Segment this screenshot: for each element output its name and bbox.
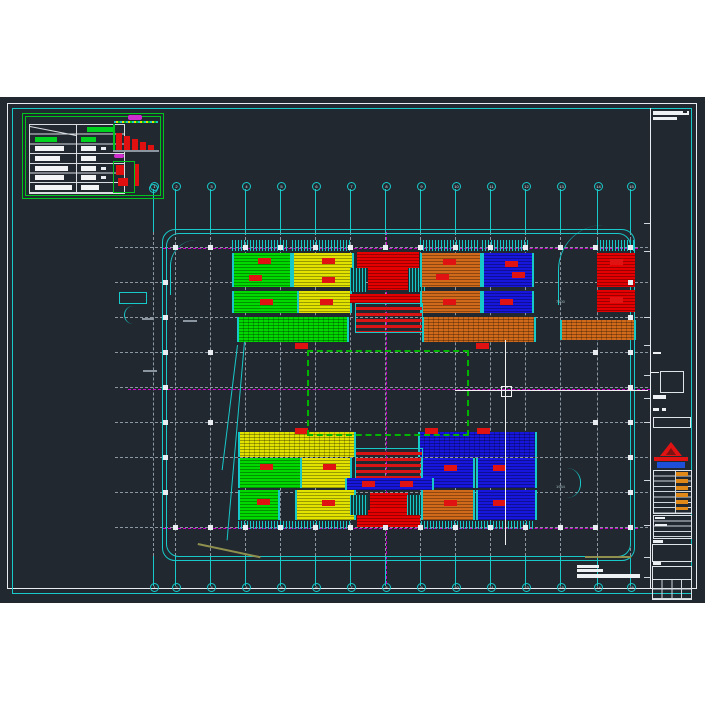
drawing-name-field <box>652 544 692 562</box>
grid-bubble: 11 <box>487 583 496 592</box>
grid-bubble: 14 <box>594 182 603 191</box>
note-line <box>577 565 599 568</box>
grid-col-stub <box>490 189 491 232</box>
legend-cell-green <box>87 127 113 132</box>
column-marker <box>628 455 633 460</box>
column-marker <box>163 420 168 425</box>
column-marker <box>163 455 168 460</box>
room-label-chip <box>295 343 308 349</box>
drawing-title-note <box>577 565 641 581</box>
column-marker <box>488 525 493 530</box>
column-marker <box>558 525 563 530</box>
grid-bubble: 10 <box>452 583 461 592</box>
room-label-chip <box>436 274 449 280</box>
room-label-chip <box>476 343 489 349</box>
crosshair-pickbox <box>501 386 512 397</box>
room-label-chip <box>443 259 456 265</box>
column-marker <box>628 315 633 320</box>
zone-block-blue[interactable] <box>482 253 534 287</box>
column-marker <box>278 525 283 530</box>
cad-viewport[interactable]: 1122334455667788991010111112121313141415… <box>0 97 705 603</box>
legend-cell-green <box>81 137 96 142</box>
zone-block-red[interactable] <box>368 268 408 290</box>
legend-cell <box>35 175 64 180</box>
frame-tick <box>644 223 650 224</box>
stair-comb-strip[interactable] <box>421 521 533 529</box>
logo-blue-band <box>657 462 685 468</box>
note-line <box>577 569 603 572</box>
legend-figure-bar <box>132 139 138 150</box>
frame-tick <box>644 557 650 558</box>
title-block <box>650 108 692 589</box>
zone-block-green[interactable] <box>238 490 280 520</box>
legend-figure-axis <box>113 124 115 151</box>
frame-tick <box>644 577 650 578</box>
title-mark <box>662 408 666 411</box>
zone-block-green[interactable] <box>238 458 302 488</box>
room-label-chip <box>500 299 513 305</box>
grid-bubble: 13 <box>557 583 566 592</box>
frame-tick <box>644 375 650 376</box>
exterior-stair <box>119 292 147 304</box>
room-label-chip <box>512 272 525 278</box>
room-label-chip <box>260 299 273 305</box>
grid-bubble: 9 <box>417 182 426 191</box>
legend-cell <box>81 185 99 190</box>
logo-red-band <box>654 457 688 461</box>
column-marker <box>628 420 633 425</box>
column-marker <box>628 280 633 285</box>
legend-figure-bar <box>116 133 122 150</box>
room-label-chip <box>477 428 490 434</box>
column-marker <box>208 350 213 355</box>
column-marker <box>453 245 458 250</box>
phase-zone-dashed-rect <box>307 350 469 436</box>
column-marker <box>208 420 213 425</box>
frame-tick <box>644 525 650 526</box>
title-mark <box>653 395 666 399</box>
column-marker <box>278 245 283 250</box>
grid-col-stub <box>245 189 246 232</box>
room-label-chip <box>249 275 262 281</box>
legend-box <box>22 113 164 199</box>
room-label-chip <box>258 258 271 264</box>
exterior-ramp <box>585 556 631 558</box>
title-square-field <box>660 371 684 393</box>
column-marker <box>163 315 168 320</box>
grid-col-stub <box>560 189 561 232</box>
grid-bubble: 15 <box>627 182 636 191</box>
zone-block-red[interactable] <box>357 252 419 268</box>
room-label-chip <box>257 499 270 505</box>
title-mark <box>655 517 665 519</box>
stage-steps[interactable] <box>355 448 423 480</box>
grid-bubble: 10 <box>452 182 461 191</box>
column-marker <box>628 245 633 250</box>
column-marker <box>593 420 598 425</box>
legend-highlight-blob <box>114 154 124 158</box>
dimension-label: 1954 <box>556 485 565 489</box>
legend-figure-bar <box>140 142 146 150</box>
project-name-vertical-text <box>676 472 688 510</box>
legend-cell <box>35 146 64 151</box>
column-marker <box>163 385 168 390</box>
grid-bubble: 13 <box>557 182 566 191</box>
legend-figure2-bar <box>118 178 128 186</box>
legend-table-diagonal <box>30 126 76 136</box>
room-label-chip <box>323 464 336 470</box>
title-mark <box>651 372 659 373</box>
column-marker <box>173 245 178 250</box>
grid-col-stub <box>385 189 386 232</box>
room-label-chip <box>320 299 333 305</box>
column-marker <box>383 525 388 530</box>
legend-figure-caption <box>114 121 158 123</box>
title-row-field <box>653 417 691 428</box>
grid-bubble: 8 <box>382 182 391 191</box>
column-marker <box>163 490 168 495</box>
zone-block-orange[interactable] <box>422 317 536 342</box>
grid-bubble: 8 <box>382 583 391 592</box>
title-mark <box>655 524 667 526</box>
column-marker <box>628 525 633 530</box>
grid-bubble: 7 <box>347 583 356 592</box>
zone-block-blue[interactable] <box>345 478 434 490</box>
zone-block-blue[interactable] <box>476 490 537 520</box>
grid-bubble: 6 <box>312 182 321 191</box>
grid-bubble: 14 <box>594 583 603 592</box>
room-label-chip <box>443 299 456 305</box>
grid-bubble: 4 <box>242 583 251 592</box>
column-marker <box>453 525 458 530</box>
legend-cell <box>35 185 72 190</box>
grid-bubble: 4 <box>242 182 251 191</box>
legend-table-divider <box>76 125 77 193</box>
column-marker <box>208 245 213 250</box>
stair-comb-strip[interactable] <box>420 240 478 251</box>
room-label-chip <box>322 500 335 506</box>
column-marker <box>593 525 598 530</box>
legend-figure-base <box>113 150 159 152</box>
grid-col-stub <box>175 189 176 232</box>
legend-table <box>29 124 125 194</box>
stair-side-block[interactable] <box>350 495 368 515</box>
grid-bubble: 15 <box>627 583 636 592</box>
grid-bubble: 2 <box>172 182 181 191</box>
column-marker <box>418 245 423 250</box>
grid-col-stub <box>420 189 421 232</box>
column-marker <box>523 525 528 530</box>
grid-bubble: 11 <box>487 182 496 191</box>
title-bar-notch <box>683 111 687 113</box>
frame-tick <box>644 480 650 481</box>
field-label-mark <box>653 540 663 543</box>
column-marker <box>593 350 598 355</box>
title-bar <box>653 117 677 120</box>
frame-tick <box>644 398 650 399</box>
grid-bubble: 3 <box>207 182 216 191</box>
zone-block-orange[interactable] <box>560 320 636 340</box>
room-label-chip <box>322 277 335 283</box>
column-marker <box>488 245 493 250</box>
frame-tick <box>644 317 650 318</box>
frame-tick <box>644 251 650 252</box>
legend-mark <box>101 167 106 170</box>
grid-col-line <box>153 232 154 556</box>
zone-block-red[interactable] <box>350 294 425 303</box>
room-label-chip <box>610 259 623 265</box>
legend-cell <box>81 146 96 151</box>
grid-col-stub <box>315 189 316 232</box>
grid-col-stub <box>210 189 211 232</box>
title-mark <box>653 352 661 354</box>
column-marker <box>523 245 528 250</box>
room-label-chip <box>400 481 413 487</box>
zone-block-red[interactable] <box>370 493 408 510</box>
legend-mark <box>101 176 106 179</box>
grid-bubble: 5 <box>277 182 286 191</box>
scale-date-grid <box>652 579 692 600</box>
column-marker <box>313 245 318 250</box>
column-marker <box>628 490 633 495</box>
room-label-chip <box>322 258 335 264</box>
grid-bubble: 2 <box>172 583 181 592</box>
grid-col-stub <box>153 556 154 586</box>
grid-col-stub <box>280 189 281 232</box>
legend-mark <box>101 147 106 150</box>
legend-figure2-bar <box>116 165 124 175</box>
exterior-stair-arc <box>124 306 137 324</box>
stair-comb-strip[interactable] <box>292 240 350 251</box>
grid-bubble: 1 <box>150 583 159 592</box>
legend-figure2-bar <box>135 164 139 186</box>
column-marker <box>558 245 563 250</box>
crosshair-h-line <box>455 390 648 391</box>
field-label-mark <box>653 562 661 565</box>
frame-tick <box>644 422 650 423</box>
dimension-label: 7500 <box>556 300 565 304</box>
grid-col-stub <box>630 189 631 232</box>
screenshot-page: 1122334455667788991010111112121313141415… <box>0 0 705 705</box>
grid-bubble: 5 <box>277 583 286 592</box>
firm-logo-inner-icon <box>666 448 676 455</box>
column-marker <box>628 350 633 355</box>
drawing-no-field <box>652 566 692 580</box>
grid-col-stub <box>525 189 526 232</box>
crosshair-v-line <box>505 340 506 545</box>
grid-bubble: 12 <box>522 583 531 592</box>
annotation-mark <box>143 370 157 372</box>
room-label-chip <box>444 465 457 471</box>
column-marker <box>348 525 353 530</box>
grid-bubble: 12 <box>522 182 531 191</box>
legend-cell <box>35 166 68 171</box>
legend-figure-bar <box>124 136 130 150</box>
column-marker <box>348 245 353 250</box>
legend-cell <box>81 175 96 180</box>
legend-cell <box>35 156 60 161</box>
annotation-mark <box>183 320 197 322</box>
frame-tick <box>644 345 650 346</box>
legend-detail-bubble <box>149 184 158 193</box>
room-label-chip <box>444 500 457 506</box>
legend-cell-green <box>35 137 57 142</box>
grid-bubble: 3 <box>207 583 216 592</box>
legend-cell <box>81 166 96 171</box>
grid-bubble: 9 <box>417 583 426 592</box>
column-marker <box>313 525 318 530</box>
stair-comb-strip[interactable] <box>238 521 352 529</box>
title-mark <box>653 408 659 411</box>
room-label-chip <box>610 297 623 303</box>
zone-block-blue[interactable] <box>476 458 537 488</box>
room-label-chip <box>505 261 518 267</box>
grid-bubble: 6 <box>312 583 321 592</box>
room-label-chip <box>362 481 375 487</box>
grid-bubble: 7 <box>347 182 356 191</box>
annotation-mark <box>142 318 154 320</box>
room-label-chip <box>260 464 273 470</box>
column-marker <box>593 245 598 250</box>
column-marker <box>208 525 213 530</box>
grid-col-stub <box>455 189 456 232</box>
grid-col-stub <box>350 189 351 232</box>
column-marker <box>418 525 423 530</box>
stage-steps[interactable] <box>355 303 423 333</box>
column-marker <box>243 245 248 250</box>
zone-block-green[interactable] <box>237 317 349 342</box>
column-marker <box>163 350 168 355</box>
stair-side-block[interactable] <box>350 268 366 292</box>
column-marker <box>243 525 248 530</box>
column-marker <box>383 245 388 250</box>
legend-cell <box>81 156 96 161</box>
column-marker <box>163 280 168 285</box>
note-line <box>577 574 640 578</box>
column-marker <box>173 525 178 530</box>
legend-highlight-blob <box>128 115 142 120</box>
